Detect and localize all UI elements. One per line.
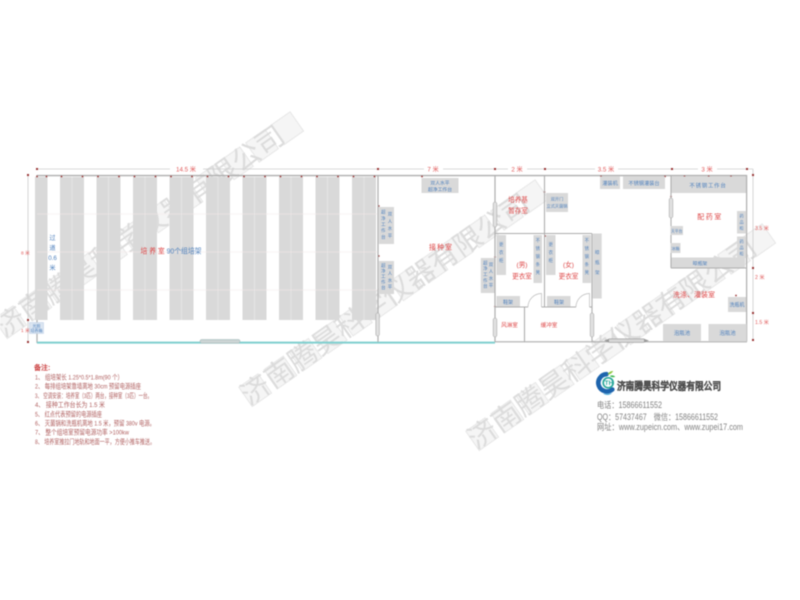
svg-text:更衣室: 更衣室 — [512, 272, 532, 281]
svg-text:更衣柜: 更衣柜 — [549, 242, 554, 264]
svg-text:药品柜: 药品柜 — [739, 238, 743, 257]
svg-text:(男): (男) — [517, 261, 528, 269]
svg-text:备注:: 备注: — [33, 363, 50, 372]
svg-text:QQ：57437467 微信：15866611552: QQ：57437467 微信：15866611552 — [597, 411, 718, 422]
svg-text:洗瓶机: 洗瓶机 — [729, 302, 744, 309]
svg-text:培养基: 培养基 — [508, 195, 528, 204]
svg-text:7、 整个组培室预留电源功率 >100kw: 7、 整个组培室预留电源功率 >100kw — [35, 428, 129, 437]
svg-text:网址：www.zupeicn.com、www.zupei17: 网址：www.zupeicn.com、www.zupei17.com — [597, 421, 743, 432]
svg-text:TH: TH — [605, 380, 614, 387]
svg-text:晾瓶架: 晾瓶架 — [693, 260, 708, 267]
svg-text:灌装机: 灌装机 — [602, 179, 618, 187]
svg-text:药品柜: 药品柜 — [739, 213, 743, 232]
svg-text:1、 组培架长 1.25*0.5*1.8m(90 个）: 1、 组培架长 1.25*0.5*1.8m(90 个） — [35, 373, 123, 382]
svg-text:双人水平: 双人水平 — [430, 180, 449, 187]
svg-text:天平台: 天平台 — [671, 229, 683, 234]
svg-text:风淋室: 风淋室 — [501, 321, 518, 329]
svg-text:14.5 米: 14.5 米 — [176, 166, 196, 174]
svg-text:(女): (女) — [563, 260, 574, 269]
svg-text:更衣柜: 更衣柜 — [499, 242, 504, 264]
svg-text:4、 接种工作台长为 1.5 米: 4、 接种工作台长为 1.5 米 — [35, 400, 105, 409]
svg-text:1 米: 1 米 — [21, 327, 30, 334]
svg-text:鞋架: 鞋架 — [503, 299, 513, 306]
svg-text:不锈钢灌装台: 不锈钢灌装台 — [628, 179, 659, 187]
svg-text:2 米: 2 米 — [755, 273, 765, 281]
svg-text:7 米: 7 米 — [427, 166, 438, 174]
svg-text:立式灭菌锅: 立式灭菌锅 — [547, 203, 568, 210]
svg-text:8 米: 8 米 — [21, 250, 30, 257]
svg-text:暂存室: 暂存室 — [508, 206, 528, 215]
svg-text:2 米: 2 米 — [511, 166, 522, 174]
svg-text:泡瓶池: 泡瓶池 — [674, 329, 691, 337]
svg-text:3.5 米: 3.5 米 — [598, 166, 615, 174]
svg-text:泡瓶池: 泡瓶池 — [719, 329, 736, 337]
svg-text:培 养 室 90个组培架: 培 养 室 90个组培架 — [141, 247, 202, 256]
svg-text:缓冲室: 缓冲室 — [541, 321, 558, 329]
svg-text:鞋架: 鞋架 — [554, 299, 564, 306]
svg-text:不锈钢工作台: 不锈钢工作台 — [689, 182, 726, 190]
svg-text:1.5 米: 1.5 米 — [755, 318, 770, 326]
svg-text:5、 红点代表预留的电源插座: 5、 红点代表预留的电源插座 — [35, 409, 102, 418]
svg-text:超净工作台: 超净工作台 — [428, 186, 452, 193]
svg-text:济南腾昊科学仪器有限公司: 济南腾昊科学仪器有限公司 — [617, 380, 721, 393]
svg-text:双开门: 双开门 — [551, 196, 564, 203]
svg-text:8、 培养室推拉门地轨和地面一平，方便小推车推送。: 8、 培养室推拉门地轨和地面一平，方便小推车推送。 — [35, 437, 155, 446]
svg-text:6、 灭菌锅和洗瓶机离地 1.5 米，预留 380v 电源。: 6、 灭菌锅和洗瓶机离地 1.5 米，预留 380v 电源。 — [35, 419, 155, 428]
svg-text:晾瓶架: 晾瓶架 — [595, 249, 600, 276]
svg-text:配药室: 配药室 — [697, 212, 723, 221]
svg-text:3、 空调安装：培养室（3匹）两台，接种室（3匹）一台。: 3、 空调安装：培养室（3匹）两台，接种室（3匹）一台。 — [35, 391, 152, 400]
svg-text:更衣室: 更衣室 — [559, 272, 579, 281]
svg-text:电话：15866611552: 电话：15866611552 — [597, 399, 662, 410]
svg-text:接种室: 接种室 — [429, 243, 453, 252]
svg-text:冰箱: 冰箱 — [672, 245, 680, 251]
svg-text:洗涤、灌装室: 洗涤、灌装室 — [673, 290, 715, 299]
svg-text:2、 每排组培架靠墙离地 30cm 预留电源插座: 2、 每排组培架靠墙离地 30cm 预留电源插座 — [35, 382, 141, 391]
svg-text:培养箱: 培养箱 — [31, 327, 43, 333]
svg-text:3.5 米: 3.5 米 — [755, 224, 770, 232]
svg-text:3 米: 3 米 — [701, 166, 712, 174]
svg-text:过道0.6米: 过道0.6米 — [48, 234, 57, 272]
